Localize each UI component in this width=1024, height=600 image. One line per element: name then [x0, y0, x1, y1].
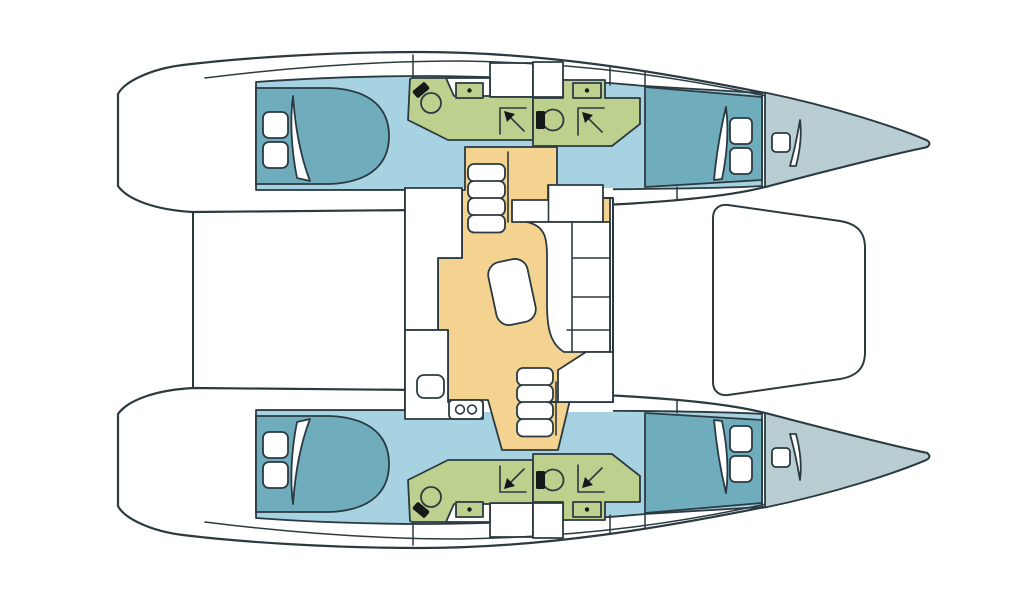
stove-burner — [456, 405, 465, 414]
washbasin-drain — [467, 88, 471, 92]
toilet-tank — [536, 111, 545, 129]
pillow — [263, 142, 288, 168]
port-companionway-gap — [490, 63, 533, 97]
stair-step — [468, 181, 505, 199]
washbasin-drain — [585, 88, 589, 92]
port-companionway-stairs — [468, 152, 508, 233]
stair-step — [468, 215, 505, 233]
pillow — [263, 112, 288, 138]
boat — [118, 52, 929, 548]
port-forward-berth — [645, 87, 762, 187]
galley-sink — [417, 375, 444, 398]
stove-burner — [468, 405, 477, 414]
stair-step — [468, 164, 505, 182]
pillow — [730, 118, 752, 144]
bow-hatch — [772, 133, 790, 152]
sink-notch — [533, 62, 563, 97]
stair-step — [517, 419, 553, 437]
stair-step — [517, 385, 553, 403]
starboard-companionway-stairs — [517, 368, 556, 437]
catamaran-floorplan — [0, 0, 1024, 600]
stair-step — [517, 368, 553, 386]
stair-step — [468, 198, 505, 216]
toilet-bowl — [421, 93, 441, 113]
toilet-bowl — [543, 110, 564, 131]
trampoline — [713, 205, 865, 395]
stair-step — [517, 402, 553, 420]
port-bow-compartment — [765, 93, 929, 188]
salon — [405, 147, 613, 450]
pillow — [730, 148, 752, 174]
floorplan-canvas — [0, 0, 1024, 600]
port-aft-berth — [256, 88, 389, 184]
stove — [449, 400, 483, 419]
